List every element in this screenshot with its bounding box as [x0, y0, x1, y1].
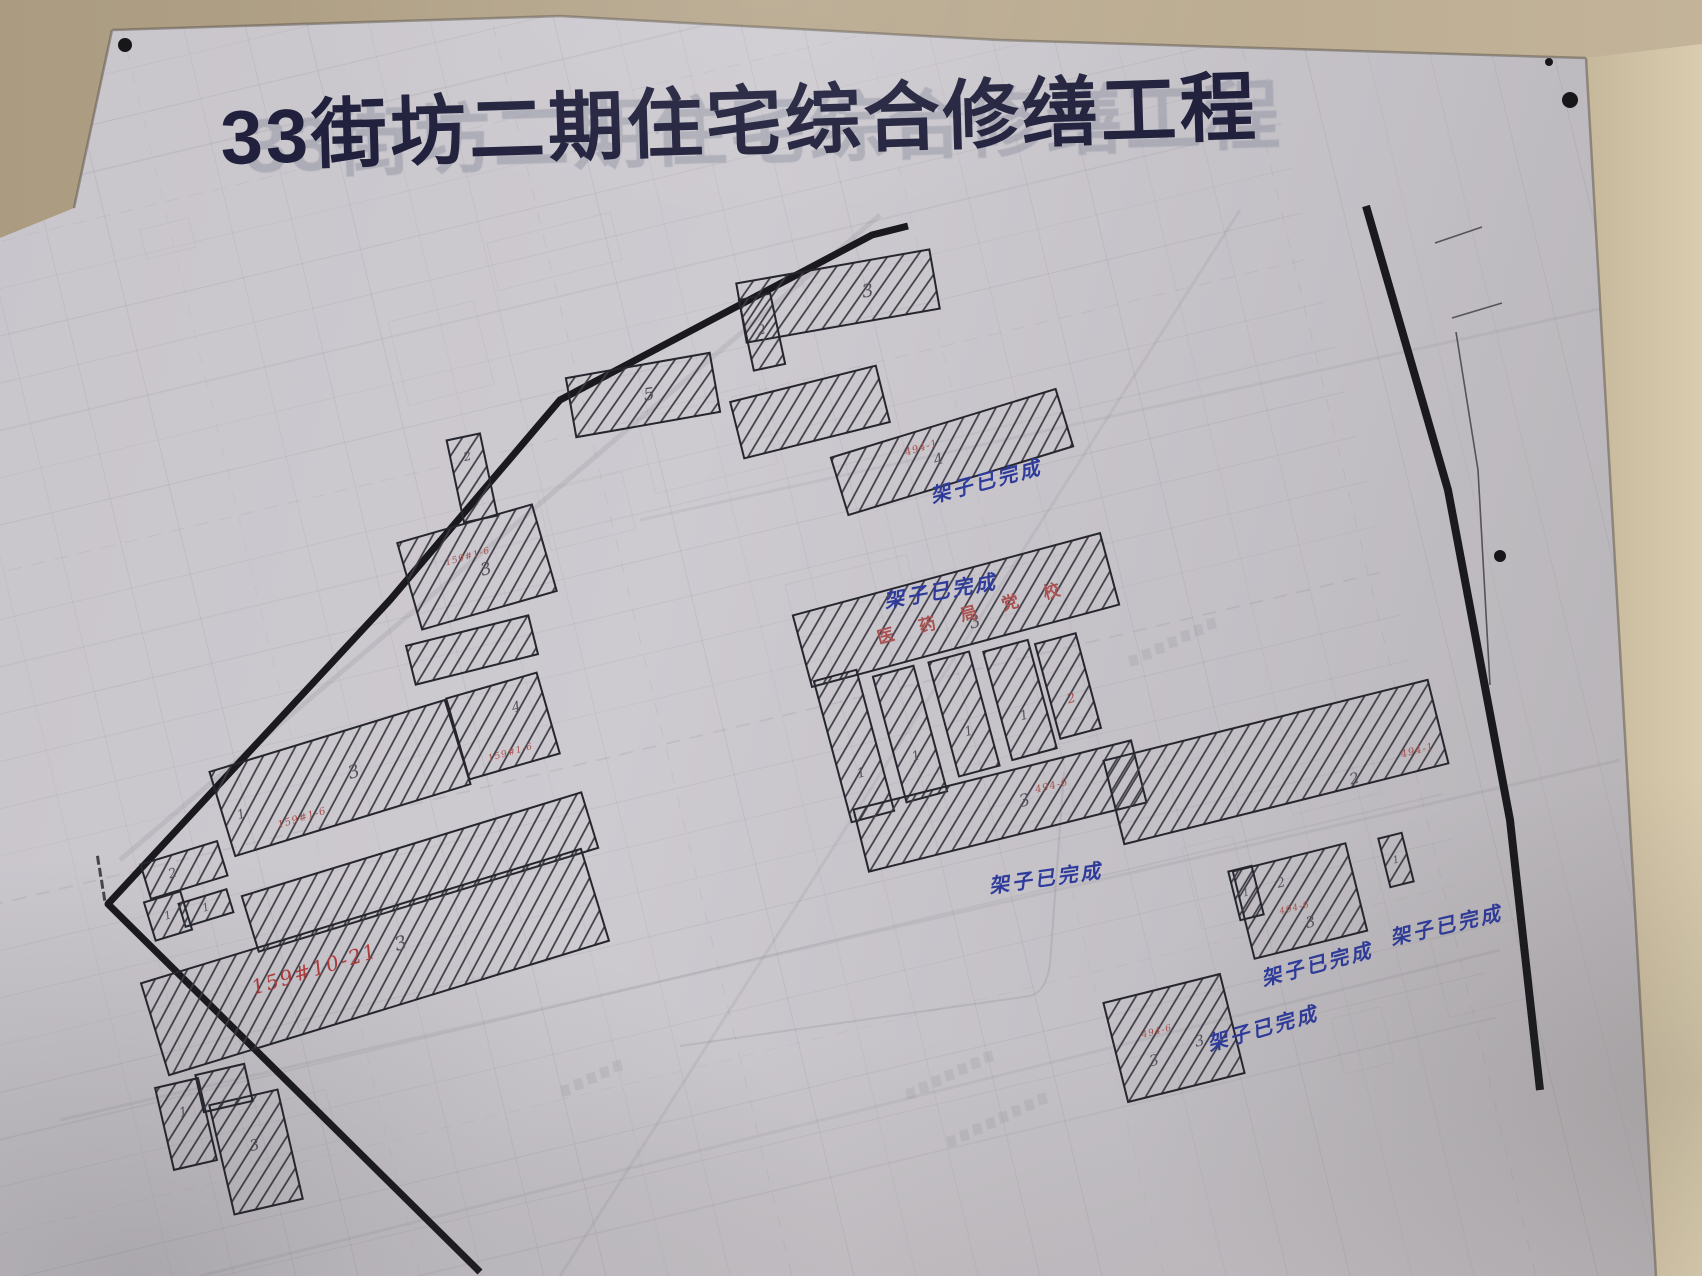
wall-right [1586, 44, 1702, 1276]
building-shape: 1 [1378, 833, 1413, 887]
push-pin [1494, 550, 1506, 562]
poster-map-area: 3254494-123159#1-64159#1-631159#1-63159#… [0, 0, 1702, 1276]
edge-tick [98, 868, 102, 877]
boundary-line-right [1366, 206, 1540, 1090]
site-plan-map: 3254494-123159#1-64159#1-631159#1-63159#… [0, 0, 1702, 1276]
edge-tick [96, 856, 100, 865]
building-shape [730, 366, 890, 459]
building-shape: 31159#1-6 [210, 700, 471, 856]
push-pin [1562, 92, 1578, 108]
handwritten-scaffold-note: 架子已完成 [1388, 901, 1505, 950]
push-pin [118, 38, 132, 52]
edge-tick [102, 892, 106, 901]
building-shape: 3159#1-6 [397, 504, 556, 629]
buildings-layer: 3254494-123159#1-64159#1-631159#1-63159#… [140, 249, 1448, 1214]
photo-of-site-plan-poster: { "poster": { "title": "33街坊二期住宅综合修缮工程" … [0, 0, 1702, 1276]
building-shape: 5 [566, 353, 720, 437]
basemap-mark [1452, 303, 1502, 318]
building-shape: 2 [447, 433, 498, 522]
edge-tick [100, 880, 104, 889]
push-pin [1545, 58, 1553, 66]
building-shape: 2494-1 [1104, 680, 1449, 845]
